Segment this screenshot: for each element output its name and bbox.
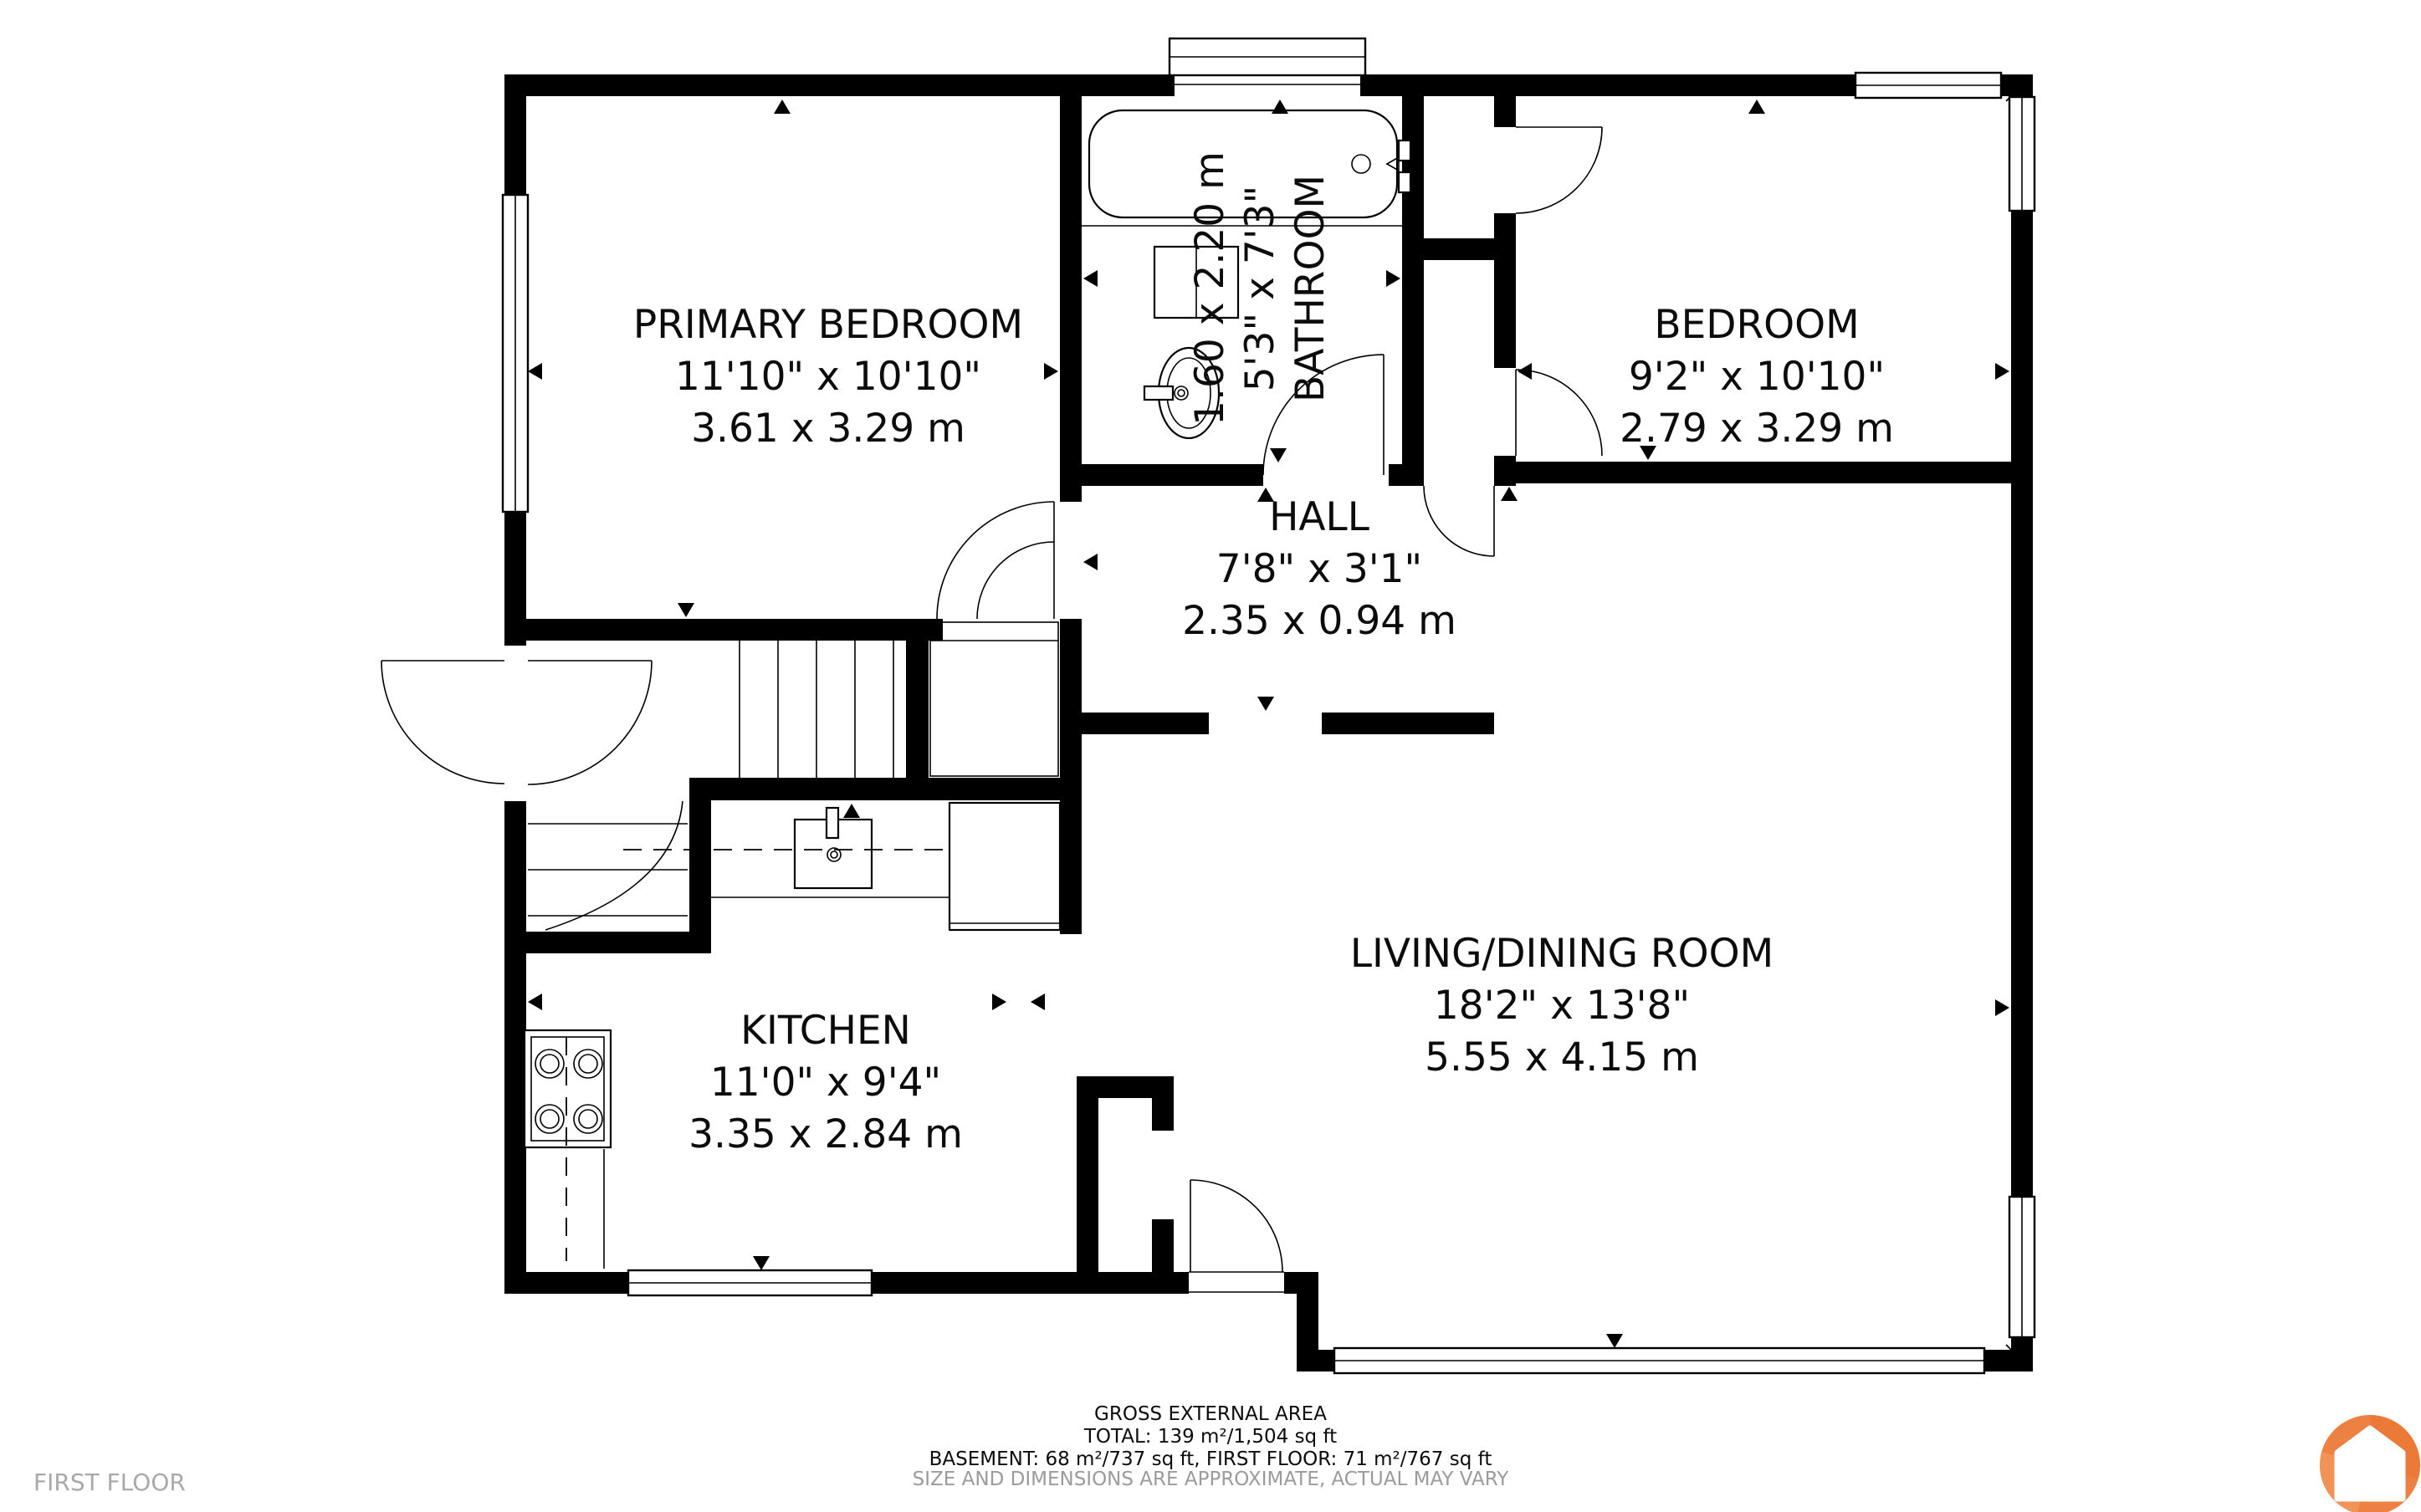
arrow-right-icon <box>1995 999 2009 1016</box>
window <box>503 195 528 512</box>
arrow-down-icon <box>678 603 694 617</box>
footer: GROSS EXTERNAL AREA TOTAL: 139 m²/1,504 … <box>913 1403 1510 1490</box>
room-name: PRIMARY BEDROOM <box>633 302 1023 348</box>
room-imperial: 11'0" x 9'4" <box>710 1060 941 1106</box>
house-logo-icon <box>2320 1415 2420 1512</box>
arrow-left-icon <box>1083 270 1098 287</box>
arrow-right-icon <box>1044 363 1058 380</box>
arrow-left-icon <box>1083 554 1098 570</box>
window <box>2009 1197 2035 1337</box>
room-label-primary-bedroom: PRIMARY BEDROOM 11'10" x 10'10" 3.61 x 3… <box>633 302 1023 452</box>
footer-total: TOTAL: 139 m²/1,504 sq ft <box>1083 1426 1337 1448</box>
door-swing <box>937 502 1054 619</box>
arrow-up-icon <box>1501 487 1518 501</box>
floorplan-drawing: PRIMARY BEDROOM 11'10" x 10'10" 3.61 x 3… <box>0 0 2421 1512</box>
arrow-left-icon <box>1518 363 1532 380</box>
room-name: KITCHEN <box>740 1008 911 1054</box>
room-metric: 5.55 x 4.15 m <box>1425 1034 1699 1080</box>
arrow-up-icon <box>1748 100 1765 114</box>
footer-breakdown: BASEMENT: 68 m²/737 sq ft, FIRST FLOOR: … <box>929 1448 1492 1470</box>
window <box>628 1270 872 1295</box>
arrow-up-icon <box>843 804 860 818</box>
room-metric: 2.79 x 3.29 m <box>1620 406 1894 452</box>
footer-disclaimer: SIZE AND DIMENSIONS ARE APPROXIMATE, ACT… <box>913 1469 1510 1490</box>
arrow-right-icon <box>992 994 1006 1010</box>
arrow-down-icon <box>1257 697 1274 711</box>
footer-title: GROSS EXTERNAL AREA <box>1094 1403 1327 1425</box>
door-swing <box>1516 127 1602 213</box>
room-metric: 1.60 x 2.20 m <box>1187 151 1233 426</box>
room-label-bathroom: 1.60 x 2.20 m 5'3" x 7'3" BATHROOM <box>1187 151 1333 426</box>
arrow-left-icon <box>528 994 542 1010</box>
kitchen-island <box>623 803 1060 930</box>
arrow-down-icon <box>1270 448 1287 462</box>
arrow-up-icon <box>1272 100 1288 114</box>
arrow-down-icon <box>1606 1334 1623 1348</box>
stove <box>525 1030 611 1269</box>
room-imperial: 18'2" x 13'8" <box>1434 983 1690 1029</box>
closet <box>930 622 1058 776</box>
room-labels: PRIMARY BEDROOM 11'10" x 10'10" 3.61 x 3… <box>633 151 1894 1157</box>
room-metric: 3.61 x 3.29 m <box>691 406 965 452</box>
room-name: LIVING/DINING ROOM <box>1350 931 1774 977</box>
arrow-down-icon <box>753 1256 770 1270</box>
room-label-kitchen: KITCHEN 11'0" x 9'4" 3.35 x 2.84 m <box>688 1008 963 1157</box>
room-label-bedroom: BEDROOM 9'2" x 10'10" 2.79 x 3.29 m <box>1620 302 1894 452</box>
door-swing <box>1190 1180 1282 1272</box>
door-swing <box>1516 370 1602 456</box>
window <box>1170 38 1365 98</box>
room-imperial: 7'8" x 3'1" <box>1216 546 1422 592</box>
room-imperial: 11'10" x 10'10" <box>675 354 981 400</box>
room-name: HALL <box>1269 494 1369 540</box>
room-metric: 3.35 x 2.84 m <box>688 1111 963 1157</box>
arrow-left-icon <box>1031 994 1045 1010</box>
window <box>1855 73 2001 98</box>
arrow-up-icon <box>774 100 791 114</box>
room-label-hall: HALL 7'8" x 3'1" 2.35 x 0.94 m <box>1182 494 1456 644</box>
arrow-right-icon <box>1995 363 2009 380</box>
floorplan-page: PRIMARY BEDROOM 11'10" x 10'10" 3.61 x 3… <box>0 0 2421 1512</box>
arrow-right-icon <box>1386 270 1400 287</box>
room-metric: 2.35 x 0.94 m <box>1182 598 1456 644</box>
room-name: BATHROOM <box>1287 175 1333 402</box>
room-label-living-dining: LIVING/DINING ROOM 18'2" x 13'8" 5.55 x … <box>1350 931 1774 1080</box>
room-imperial: 5'3" x 7'3" <box>1237 186 1283 391</box>
floor-label: FIRST FLOOR <box>33 1469 186 1496</box>
window <box>2009 97 2035 211</box>
arrow-left-icon <box>528 363 542 380</box>
door-swing <box>1424 486 1494 556</box>
room-name: BEDROOM <box>1654 302 1859 348</box>
room-imperial: 9'2" x 10'10" <box>1629 354 1885 400</box>
window <box>1334 1348 1984 1373</box>
